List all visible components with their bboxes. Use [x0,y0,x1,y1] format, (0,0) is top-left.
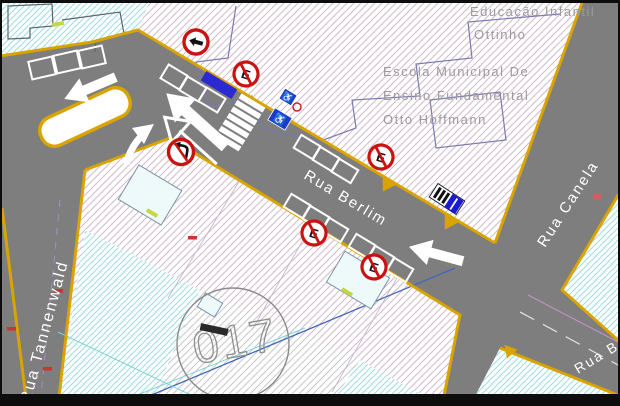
map-canvas: ♿ ♿ E E E [0,0,620,406]
school-label-line2: Ottinho [474,27,526,42]
school-label-line3: Escola Municipal De [383,64,529,79]
small-sign-dot [293,103,301,111]
cad-traffic-map: ♿ ♿ E E E [0,0,620,406]
school-label-line1: Educação Infantil [470,4,595,19]
school-label-line5: Otto Hoffmann [383,112,487,127]
school-label-line4: Ensino Fundamental [383,88,529,103]
